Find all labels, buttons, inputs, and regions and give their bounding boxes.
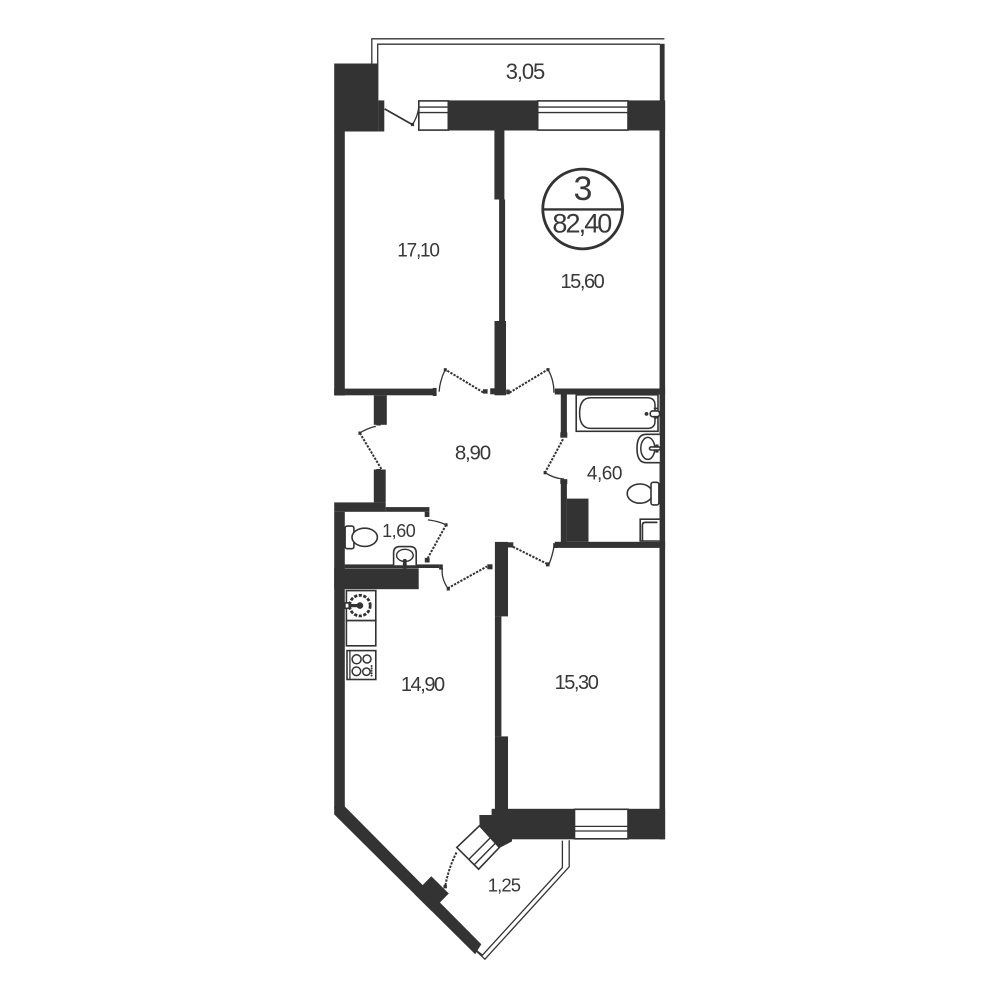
svg-text:82,40: 82,40 <box>552 208 611 238</box>
svg-text:14,90: 14,90 <box>401 674 445 696</box>
svg-text:17,10: 17,10 <box>397 240 439 261</box>
svg-text:15,30: 15,30 <box>555 672 599 694</box>
svg-text:1,60: 1,60 <box>382 521 416 541</box>
svg-text:3,05: 3,05 <box>506 59 545 84</box>
svg-text:3: 3 <box>574 170 593 208</box>
svg-text:4,60: 4,60 <box>587 463 622 484</box>
svg-text:15,60: 15,60 <box>560 271 604 293</box>
svg-text:1,25: 1,25 <box>488 874 521 895</box>
svg-text:8,90: 8,90 <box>455 442 491 465</box>
